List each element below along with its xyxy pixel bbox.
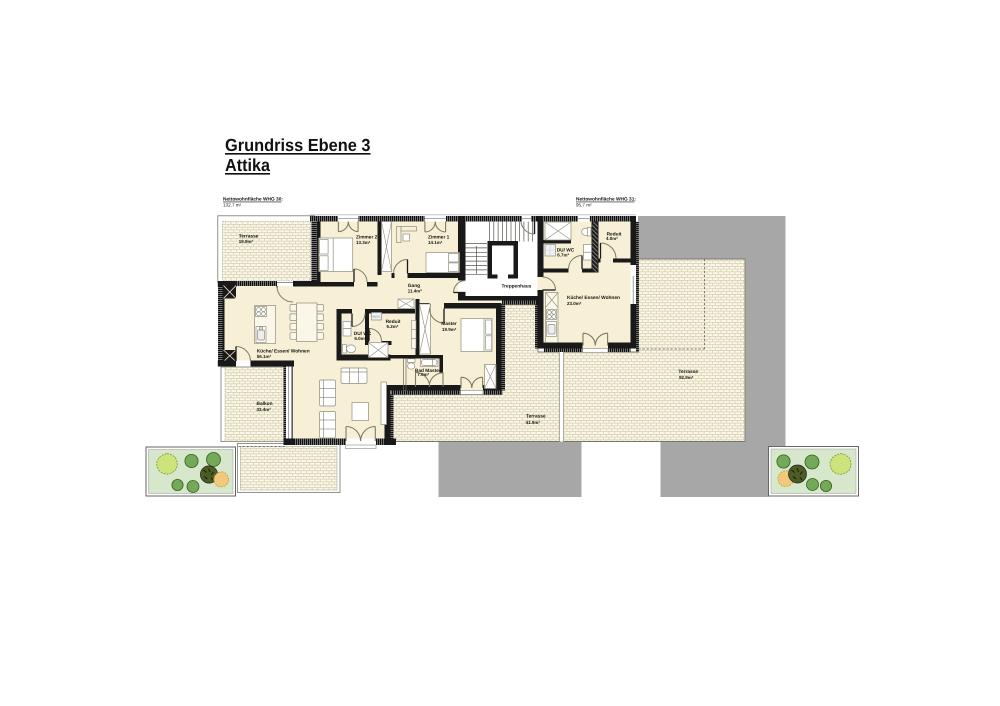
- svg-text:95.7 m²: 95.7 m²: [576, 202, 592, 207]
- svg-text:7.0m²: 7.0m²: [417, 372, 429, 377]
- svg-text:Attika: Attika: [225, 155, 270, 175]
- svg-text:92.8m²: 92.8m²: [679, 375, 694, 380]
- svg-text:Terrasse: Terrasse: [526, 414, 546, 420]
- svg-text:14.1m²: 14.1m²: [428, 240, 443, 245]
- svg-text:56.1m²: 56.1m²: [257, 354, 272, 359]
- svg-text:Grundriss Ebene 3: Grundriss Ebene 3: [225, 135, 371, 155]
- svg-text:Treppenhaus: Treppenhaus: [502, 283, 532, 289]
- svg-text:132.7 m²: 132.7 m²: [223, 202, 242, 207]
- svg-text:13.3m²: 13.3m²: [356, 240, 371, 245]
- svg-text:11.4m²: 11.4m²: [408, 288, 423, 293]
- svg-text:33.4m²: 33.4m²: [257, 407, 272, 412]
- svg-text:19.9m²: 19.9m²: [442, 327, 457, 332]
- svg-text:18.9m²: 18.9m²: [239, 239, 254, 244]
- svg-text:41.9m²: 41.9m²: [526, 420, 541, 425]
- svg-text:6.0m²: 6.0m²: [354, 336, 366, 341]
- svg-text:6.7m²: 6.7m²: [557, 253, 569, 258]
- svg-text:WaTu: WaTu: [373, 315, 381, 319]
- svg-text:4.0m²: 4.0m²: [606, 236, 618, 241]
- svg-text:6.2m²: 6.2m²: [387, 324, 399, 329]
- svg-text:23.0m²: 23.0m²: [567, 301, 582, 306]
